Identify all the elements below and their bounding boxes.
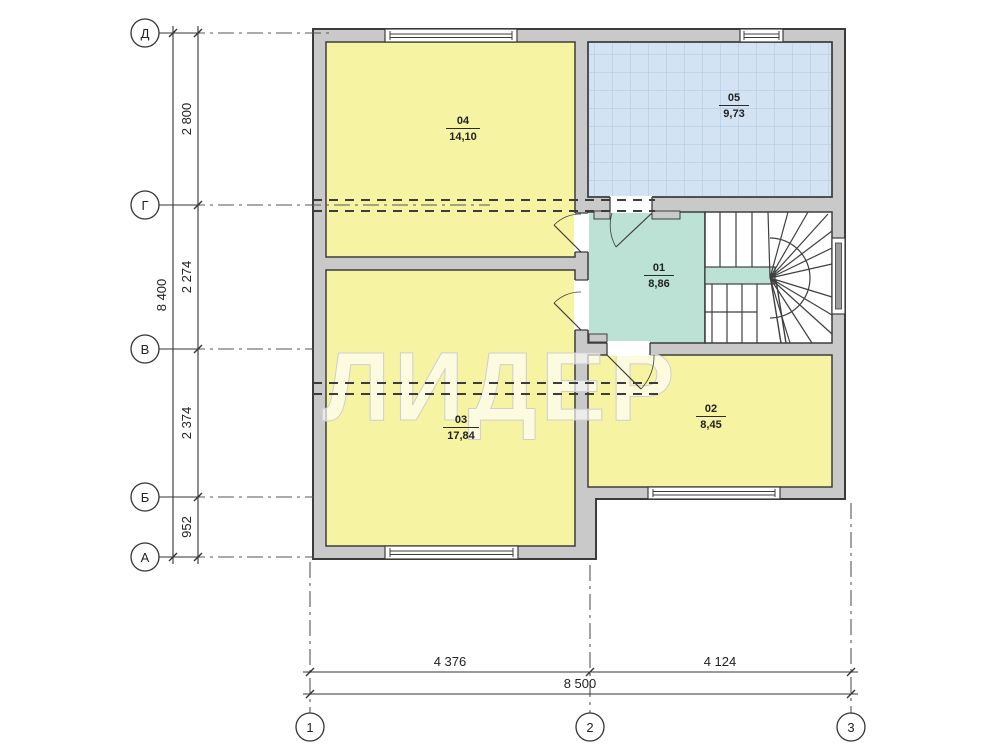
window-room-03 — [385, 546, 518, 559]
room-05-area: 9,73 — [723, 108, 744, 120]
room-05-number: 05 — [728, 92, 740, 104]
room-04-area: 14,10 — [449, 131, 477, 143]
dim-left-segment-1: 2 800 — [179, 103, 194, 136]
dim-bottom-segment-1: 4 376 — [434, 654, 467, 669]
dim-bottom-segment-2: 4 124 — [704, 654, 737, 669]
dim-left-segment-2: 2 274 — [179, 261, 194, 294]
room-01-hall — [588, 212, 705, 343]
axis-label-a: А — [141, 550, 150, 565]
window-room-04 — [385, 29, 517, 42]
door-04-opening — [574, 213, 589, 252]
axis-label-2: 2 — [586, 720, 593, 735]
axis-label-1: 1 — [306, 720, 313, 735]
left-dimensions: 2 800 2 274 2 374 952 8 400 — [154, 26, 202, 564]
dim-left-segment-4: 952 — [179, 516, 194, 538]
stair-landing — [705, 267, 775, 284]
room-05-tile-hatch — [588, 42, 832, 197]
room-02-number: 02 — [705, 403, 717, 415]
axis-label-g: Г — [141, 198, 148, 213]
axis-label-d: Д — [141, 26, 150, 41]
door-05-opening — [610, 196, 652, 213]
door-jamb-stub — [652, 211, 680, 219]
room-03-area: 17,84 — [447, 430, 475, 442]
dim-bottom-total: 8 500 — [564, 676, 597, 691]
floor-plan-drawing: ЛИДЕР — [0, 0, 1000, 750]
door-jamb-stub — [594, 211, 610, 219]
room-01-number: 01 — [653, 262, 665, 274]
axis-label-3: 3 — [847, 720, 854, 735]
dim-left-segment-3: 2 374 — [179, 407, 194, 440]
room-02-area: 8,45 — [700, 419, 721, 431]
window-stairs — [832, 238, 845, 314]
axis-label-v: В — [141, 342, 150, 357]
door-03-opening — [574, 280, 589, 330]
window-room-02 — [648, 487, 780, 499]
window-room-05 — [740, 29, 783, 42]
bottom-dimensions: 4 376 4 124 8 500 — [303, 654, 858, 698]
axis-label-b: Б — [141, 490, 150, 505]
room-03-number: 03 — [455, 414, 467, 426]
door-02-opening — [607, 341, 650, 356]
room-04-number: 04 — [457, 115, 470, 127]
room-04 — [326, 42, 575, 257]
dim-left-total: 8 400 — [154, 279, 169, 312]
floor-plan-screenshot: ЛИДЕР — [0, 0, 1000, 750]
room-01-area: 8,86 — [648, 278, 669, 290]
door-jamb-stub — [589, 334, 607, 342]
